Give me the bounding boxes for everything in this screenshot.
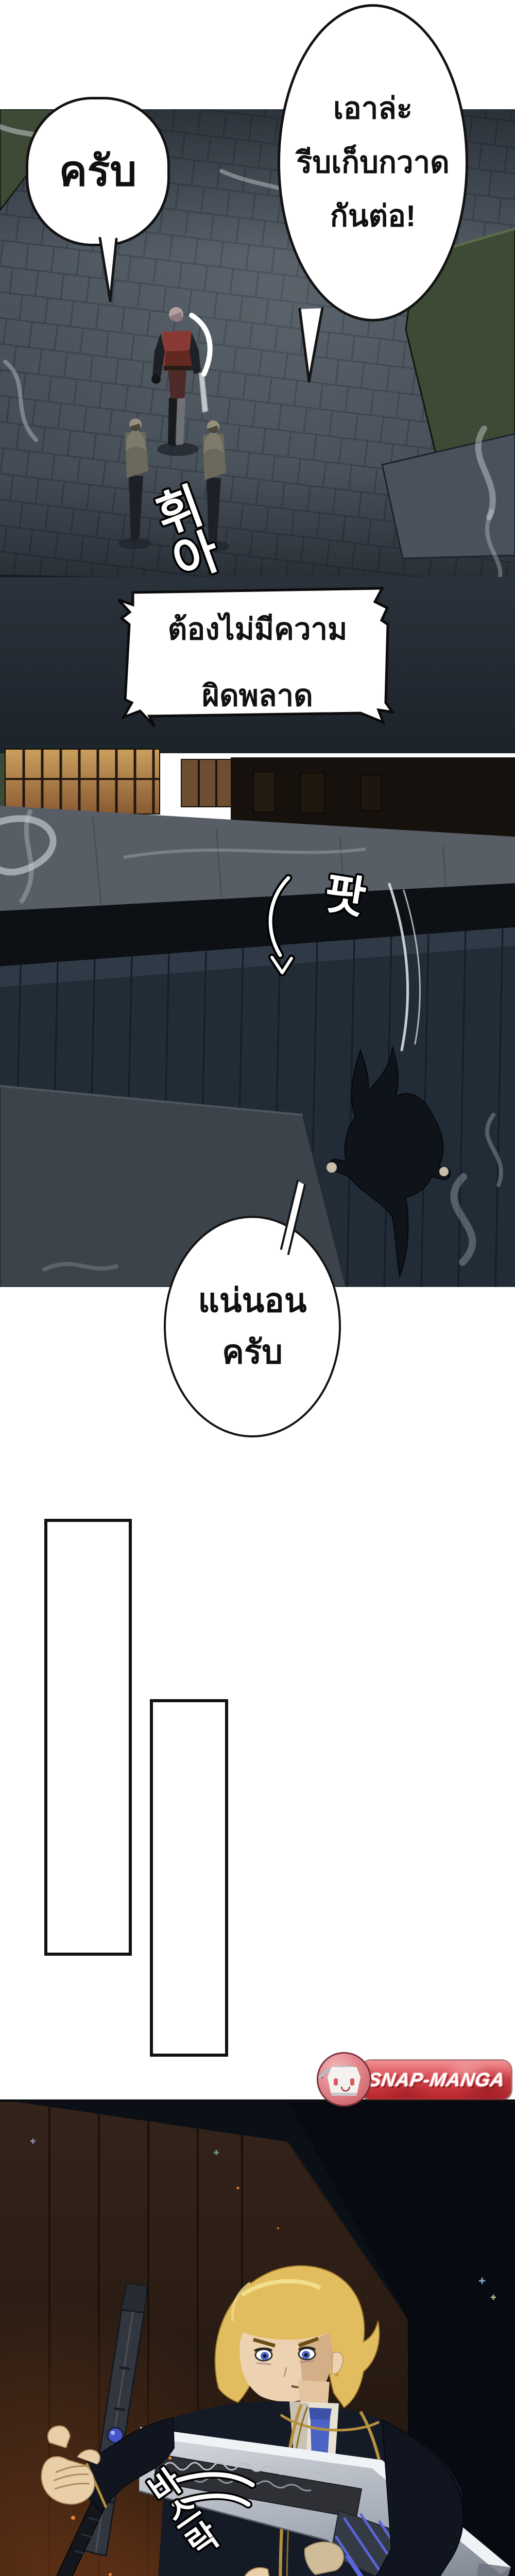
bubble-order-line1: เอาล่ะ	[333, 92, 413, 126]
bubble-reply-tail	[98, 237, 118, 304]
empty-panel-offset	[150, 1699, 228, 2057]
mascot-left-eye	[334, 2078, 338, 2086]
sword-art	[0, 2099, 515, 2576]
bubble-sure-line2: ครับ	[222, 1333, 283, 1371]
empty-panel-tall	[44, 1519, 132, 1956]
watermark-brand-text: SNAP-MANGA	[367, 2069, 506, 2091]
bubble-sure-tail	[280, 1180, 307, 1256]
earring	[335, 2372, 339, 2377]
speech-bubble-reply: ครับ	[26, 97, 170, 246]
bubble-reply-text: ครับ	[59, 147, 137, 196]
watermark-banner: SNAP-MANGA	[362, 2061, 511, 2099]
mascot-avatar-icon	[318, 2054, 370, 2105]
bubble-order-tail	[297, 307, 325, 384]
panel-sword-polish	[0, 2099, 515, 2576]
caption-line2: ผิดพลาด	[202, 671, 313, 719]
caption-line1: ต้องไม่มีความ	[168, 605, 348, 653]
mascot-smile	[341, 2087, 350, 2092]
mascot-face	[328, 2067, 360, 2096]
manga-page: ครับ เอาล่ะ รีบเก็บกวาด กันต่อ! ต้องไม่ม…	[0, 0, 515, 2576]
left-eye	[254, 2349, 272, 2361]
mascot-right-eye	[350, 2078, 354, 2086]
speech-bubble-order: เอาล่ะ รีบเก็บกวาด กันต่อ!	[278, 4, 468, 321]
speech-bubble-sure: แน่นอน ครับ	[164, 1216, 341, 1437]
bubble-order-line3: กันต่อ!	[330, 199, 416, 234]
right-eye	[299, 2348, 315, 2360]
bubble-order-line2: รีบเก็บกวาด	[296, 146, 450, 180]
caption-box-text: ต้องไม่มีความ ผิดพลาด	[136, 608, 379, 716]
watermark-snap-manga: SNAP-MANGA	[318, 2054, 515, 2108]
bubble-sure-line1: แน่นอน	[198, 1282, 307, 1320]
